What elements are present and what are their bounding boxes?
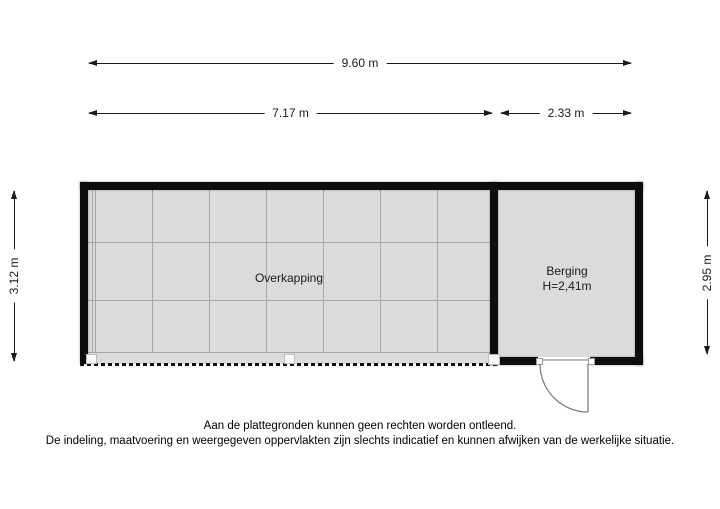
arrow-left-icon	[500, 110, 509, 116]
arrow-down-icon	[11, 353, 17, 362]
berging-ceiling-height: H=2,41m	[498, 279, 636, 294]
dimension-berging-depth: 2.95 m	[704, 190, 711, 355]
dimension-total-width-label: 9.60 m	[334, 56, 387, 70]
berging-door-swing	[530, 358, 600, 420]
support-post-left	[86, 354, 97, 364]
support-post-right	[488, 354, 500, 365]
arrow-up-icon	[11, 190, 17, 199]
wall-right	[635, 182, 643, 365]
arrow-left-icon	[88, 60, 97, 66]
overkapping-label: Overkapping	[88, 271, 490, 286]
support-post-middle	[284, 354, 295, 364]
arrow-right-icon	[484, 110, 493, 116]
arrow-down-icon	[704, 346, 710, 355]
dimension-overkapping-width-label: 7.17 m	[264, 106, 317, 120]
door-arc	[540, 364, 588, 412]
berging-name: Berging	[498, 264, 636, 279]
dimension-overkapping-depth-label: 3.12 m	[7, 250, 21, 303]
disclaimer-line-2: De indeling, maatvoering en weergegeven …	[0, 434, 720, 449]
wall-top	[80, 182, 643, 190]
wall-left	[80, 182, 88, 364]
arrow-right-icon	[623, 60, 632, 66]
arrow-up-icon	[704, 190, 710, 199]
floorplan-canvas: 9.60 m 7.17 m 2.33 m 3.12 m 2.95 m	[0, 0, 720, 509]
dimension-berging-width-label: 2.33 m	[540, 106, 593, 120]
dimension-berging-width: 2.33 m	[500, 110, 632, 117]
dimension-total-width: 9.60 m	[88, 60, 632, 67]
disclaimer: Aan de plattegronden kunnen geen rechten…	[0, 419, 720, 449]
wall-divider	[490, 182, 498, 365]
berging-label: Berging H=2,41m	[498, 264, 636, 294]
arrow-right-icon	[623, 110, 632, 116]
arrow-left-icon	[88, 110, 97, 116]
dimension-overkapping-depth: 3.12 m	[11, 190, 18, 362]
disclaimer-line-1: Aan de plattegronden kunnen geen rechten…	[0, 419, 720, 434]
dimension-overkapping-width: 7.17 m	[88, 110, 493, 117]
dimension-berging-depth-label: 2.95 m	[700, 246, 714, 299]
